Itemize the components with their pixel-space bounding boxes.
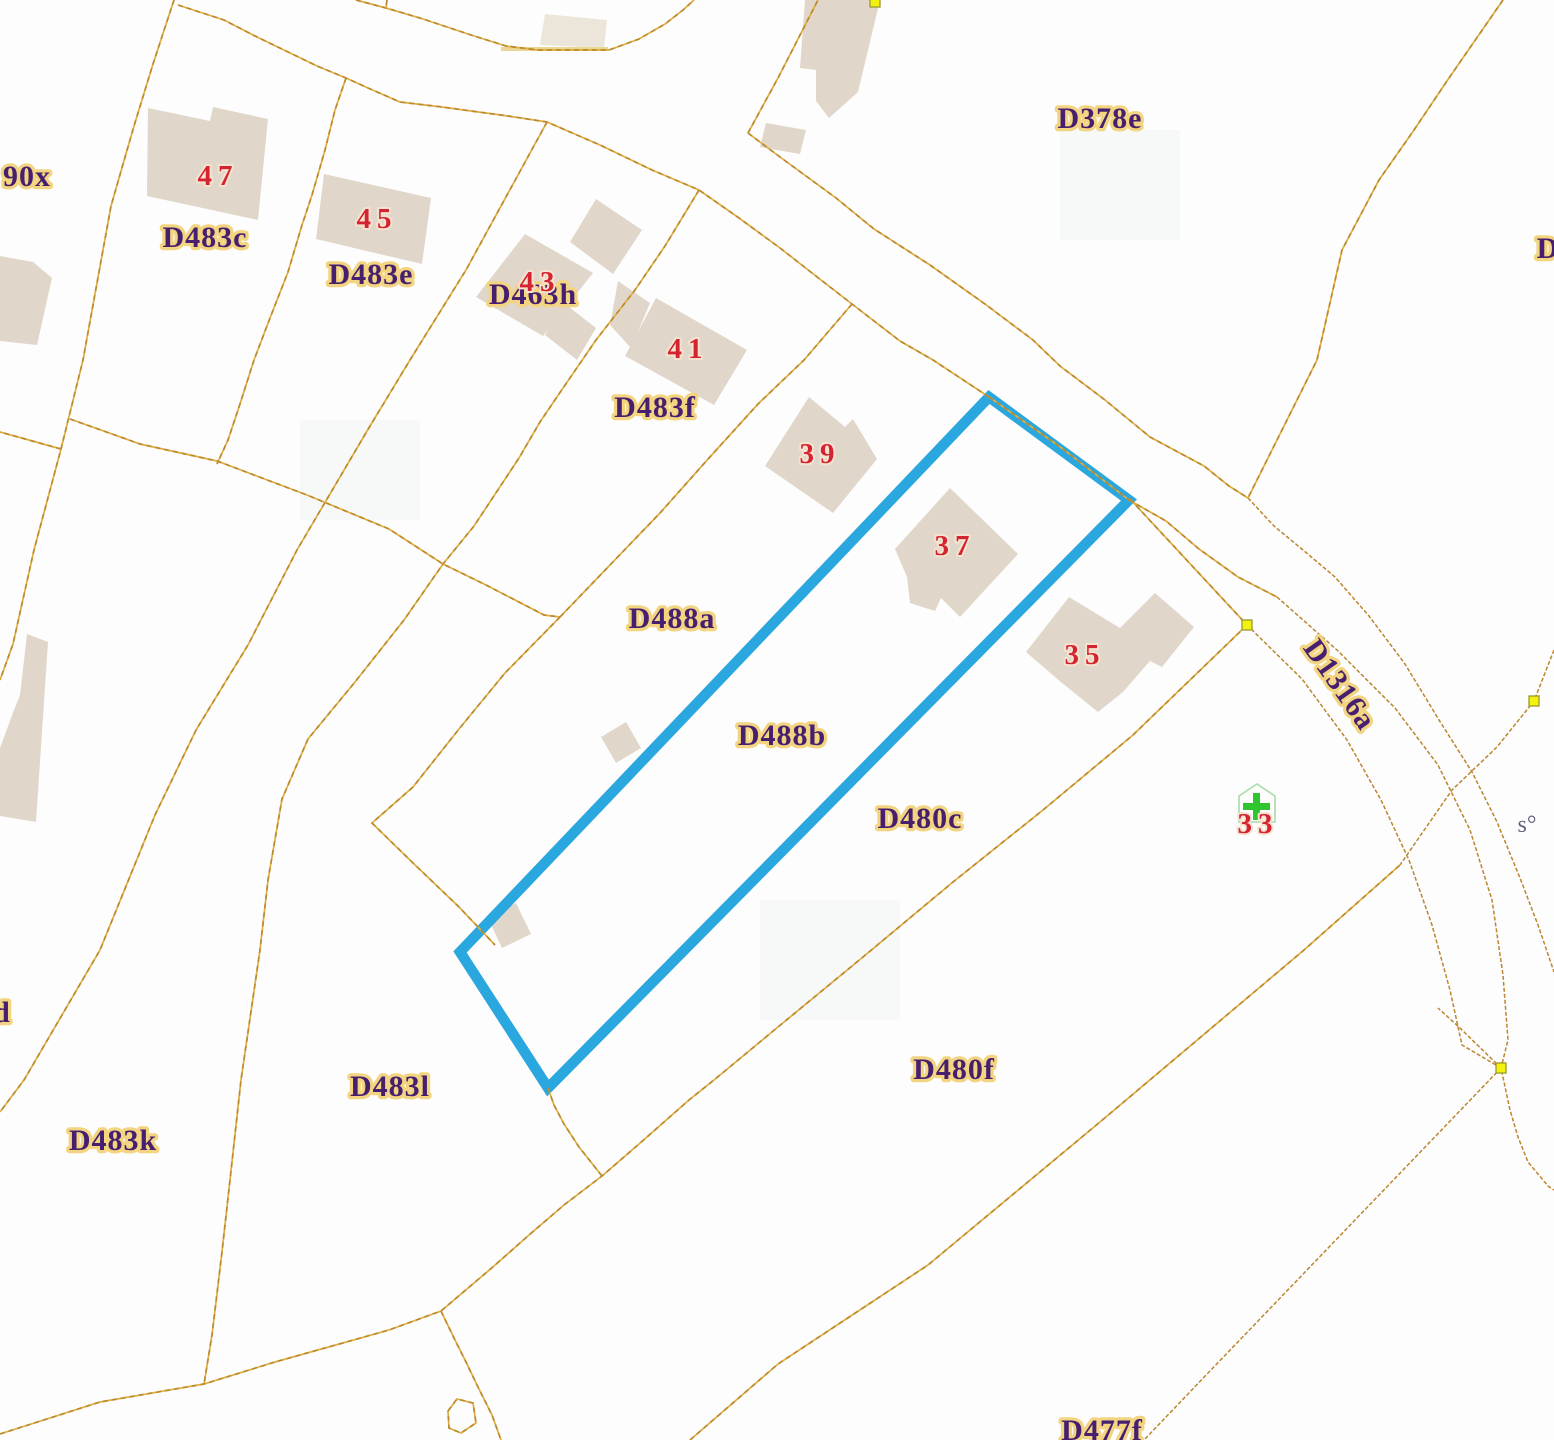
svg-text:D: D [1537,232,1554,265]
svg-text:D480c: D480c [878,802,963,835]
svg-text:D378e: D378e [1058,102,1143,135]
svg-text:D488b: D488b [738,719,826,752]
svg-text:90x: 90x [3,160,51,193]
svg-text:s°: s° [1518,812,1537,838]
svg-text:D483e: D483e [329,258,414,291]
svg-text:45: 45 [357,203,398,235]
svg-text:39: 39 [800,438,841,470]
svg-text:37: 37 [935,530,976,562]
svg-text:43: 43 [520,266,561,298]
svg-text:41: 41 [668,333,709,365]
svg-text:33: 33 [1238,808,1279,840]
svg-text:D477f: D477f [1061,1414,1143,1440]
svg-text:D483k: D483k [69,1124,157,1157]
svg-text:D488a: D488a [629,602,716,635]
svg-text:d: d [0,996,11,1029]
svg-text:D483f: D483f [614,391,696,424]
svg-text:D483c: D483c [163,221,248,254]
svg-text:47: 47 [198,160,239,192]
svg-text:35: 35 [1065,639,1106,671]
svg-text:D480f: D480f [913,1053,995,1086]
svg-text:D483l: D483l [350,1070,430,1103]
